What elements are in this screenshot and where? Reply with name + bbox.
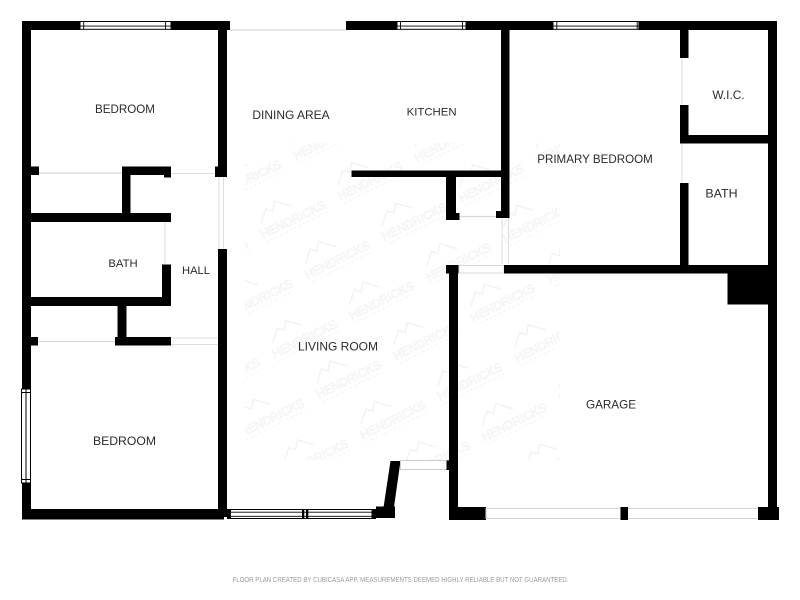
- svg-text:BEDROOM: BEDROOM: [93, 434, 156, 448]
- svg-text:BEDROOM: BEDROOM: [95, 103, 155, 116]
- svg-text:KITCHEN: KITCHEN: [407, 107, 457, 119]
- svg-text:LIVING ROOM: LIVING ROOM: [298, 340, 378, 354]
- svg-text:W.I.C.: W.I.C.: [712, 88, 744, 102]
- svg-text:DINING AREA: DINING AREA: [252, 108, 329, 122]
- svg-text:GARAGE: GARAGE: [586, 399, 636, 412]
- svg-text:PRIMARY BEDROOM: PRIMARY BEDROOM: [537, 153, 653, 166]
- svg-text:BATH: BATH: [705, 187, 737, 201]
- svg-text:FLOOR PLAN CREATED BY CUBICASA: FLOOR PLAN CREATED BY CUBICASA APP. MEAS…: [233, 577, 569, 584]
- svg-text:BATH: BATH: [108, 258, 137, 270]
- svg-text:HALL: HALL: [182, 265, 210, 277]
